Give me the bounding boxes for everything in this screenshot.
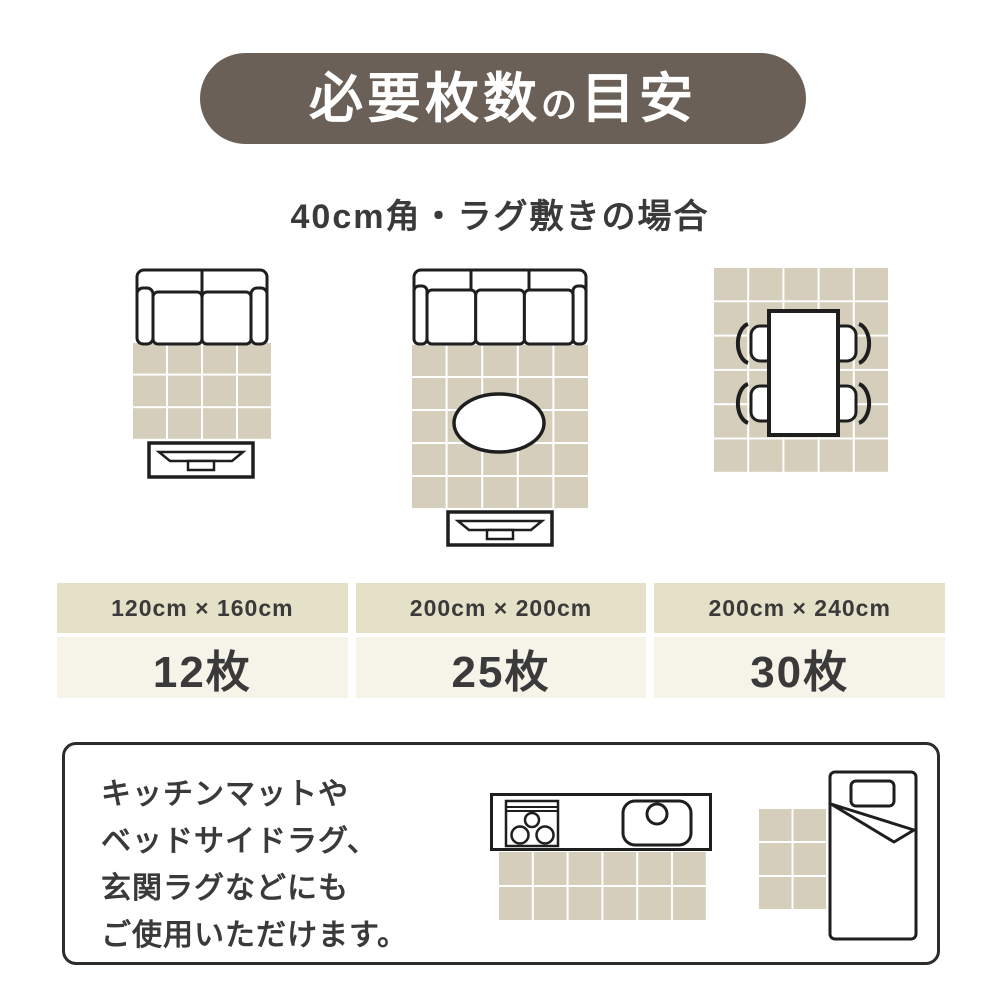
oval-table-icon (454, 394, 544, 452)
infographic: 必要枚数の目安 40cm角・ラグ敷きの場合 (0, 0, 1000, 1000)
layout-illustration-200x240 (714, 268, 888, 472)
kitchen-mat-grid (499, 852, 706, 920)
sofa-2seat-icon (137, 270, 267, 344)
subtitle: 40cm角・ラグ敷きの場合 (0, 189, 1000, 238)
pillow-icon (851, 781, 894, 806)
page-title: 必要枚数の目安 (309, 72, 697, 126)
size-label-1: 120cm × 160cm (57, 583, 348, 633)
count-label-3: 30枚 (654, 637, 945, 698)
sofa-3seat-icon (414, 270, 586, 344)
dining-table-icon (769, 311, 838, 435)
table-column-3: 200cm × 240cm 30枚 (654, 583, 945, 698)
sink-icon (623, 801, 691, 845)
layout-illustration-120x160 (133, 268, 271, 480)
title-text-tail: 目安 (581, 69, 697, 129)
bed-illustration (759, 770, 919, 942)
bed-icon (830, 772, 916, 939)
table-column-1: 120cm × 160cm 12枚 (57, 583, 348, 698)
title-text-particle: の (541, 84, 581, 125)
stove-icon (506, 801, 558, 846)
size-label-3: 200cm × 240cm (654, 583, 945, 633)
note-line-4: ご使用いただけます。 (101, 912, 408, 959)
count-label-1: 12枚 (57, 637, 348, 698)
usage-note-box: キッチンマットや ベッドサイドラグ、 玄関ラグなどにも ご使用いただけます。 (62, 742, 940, 965)
usage-note-text: キッチンマットや ベッドサイドラグ、 玄関ラグなどにも ご使用いただけます。 (101, 771, 408, 959)
note-line-2: ベッドサイドラグ、 (101, 818, 408, 865)
size-label-2: 200cm × 200cm (356, 583, 647, 633)
table-column-2: 200cm × 200cm 25枚 (356, 583, 647, 698)
tv-board-icon (149, 443, 253, 477)
tv-board-icon (448, 512, 552, 545)
title-text-main: 必要枚数 (309, 69, 541, 129)
title-banner: 必要枚数の目安 (200, 53, 806, 144)
size-count-table: 120cm × 160cm 12枚 200cm × 200cm 25枚 200c… (57, 583, 945, 698)
note-line-1: キッチンマットや (101, 771, 408, 818)
bedside-rug-grid (759, 809, 826, 909)
count-label-2: 25枚 (356, 637, 647, 698)
rug-grid-12 (133, 343, 271, 439)
layout-illustration-200x200 (412, 268, 588, 546)
note-line-3: 玄関ラグなどにも (101, 865, 408, 912)
kitchen-illustration (490, 793, 712, 921)
